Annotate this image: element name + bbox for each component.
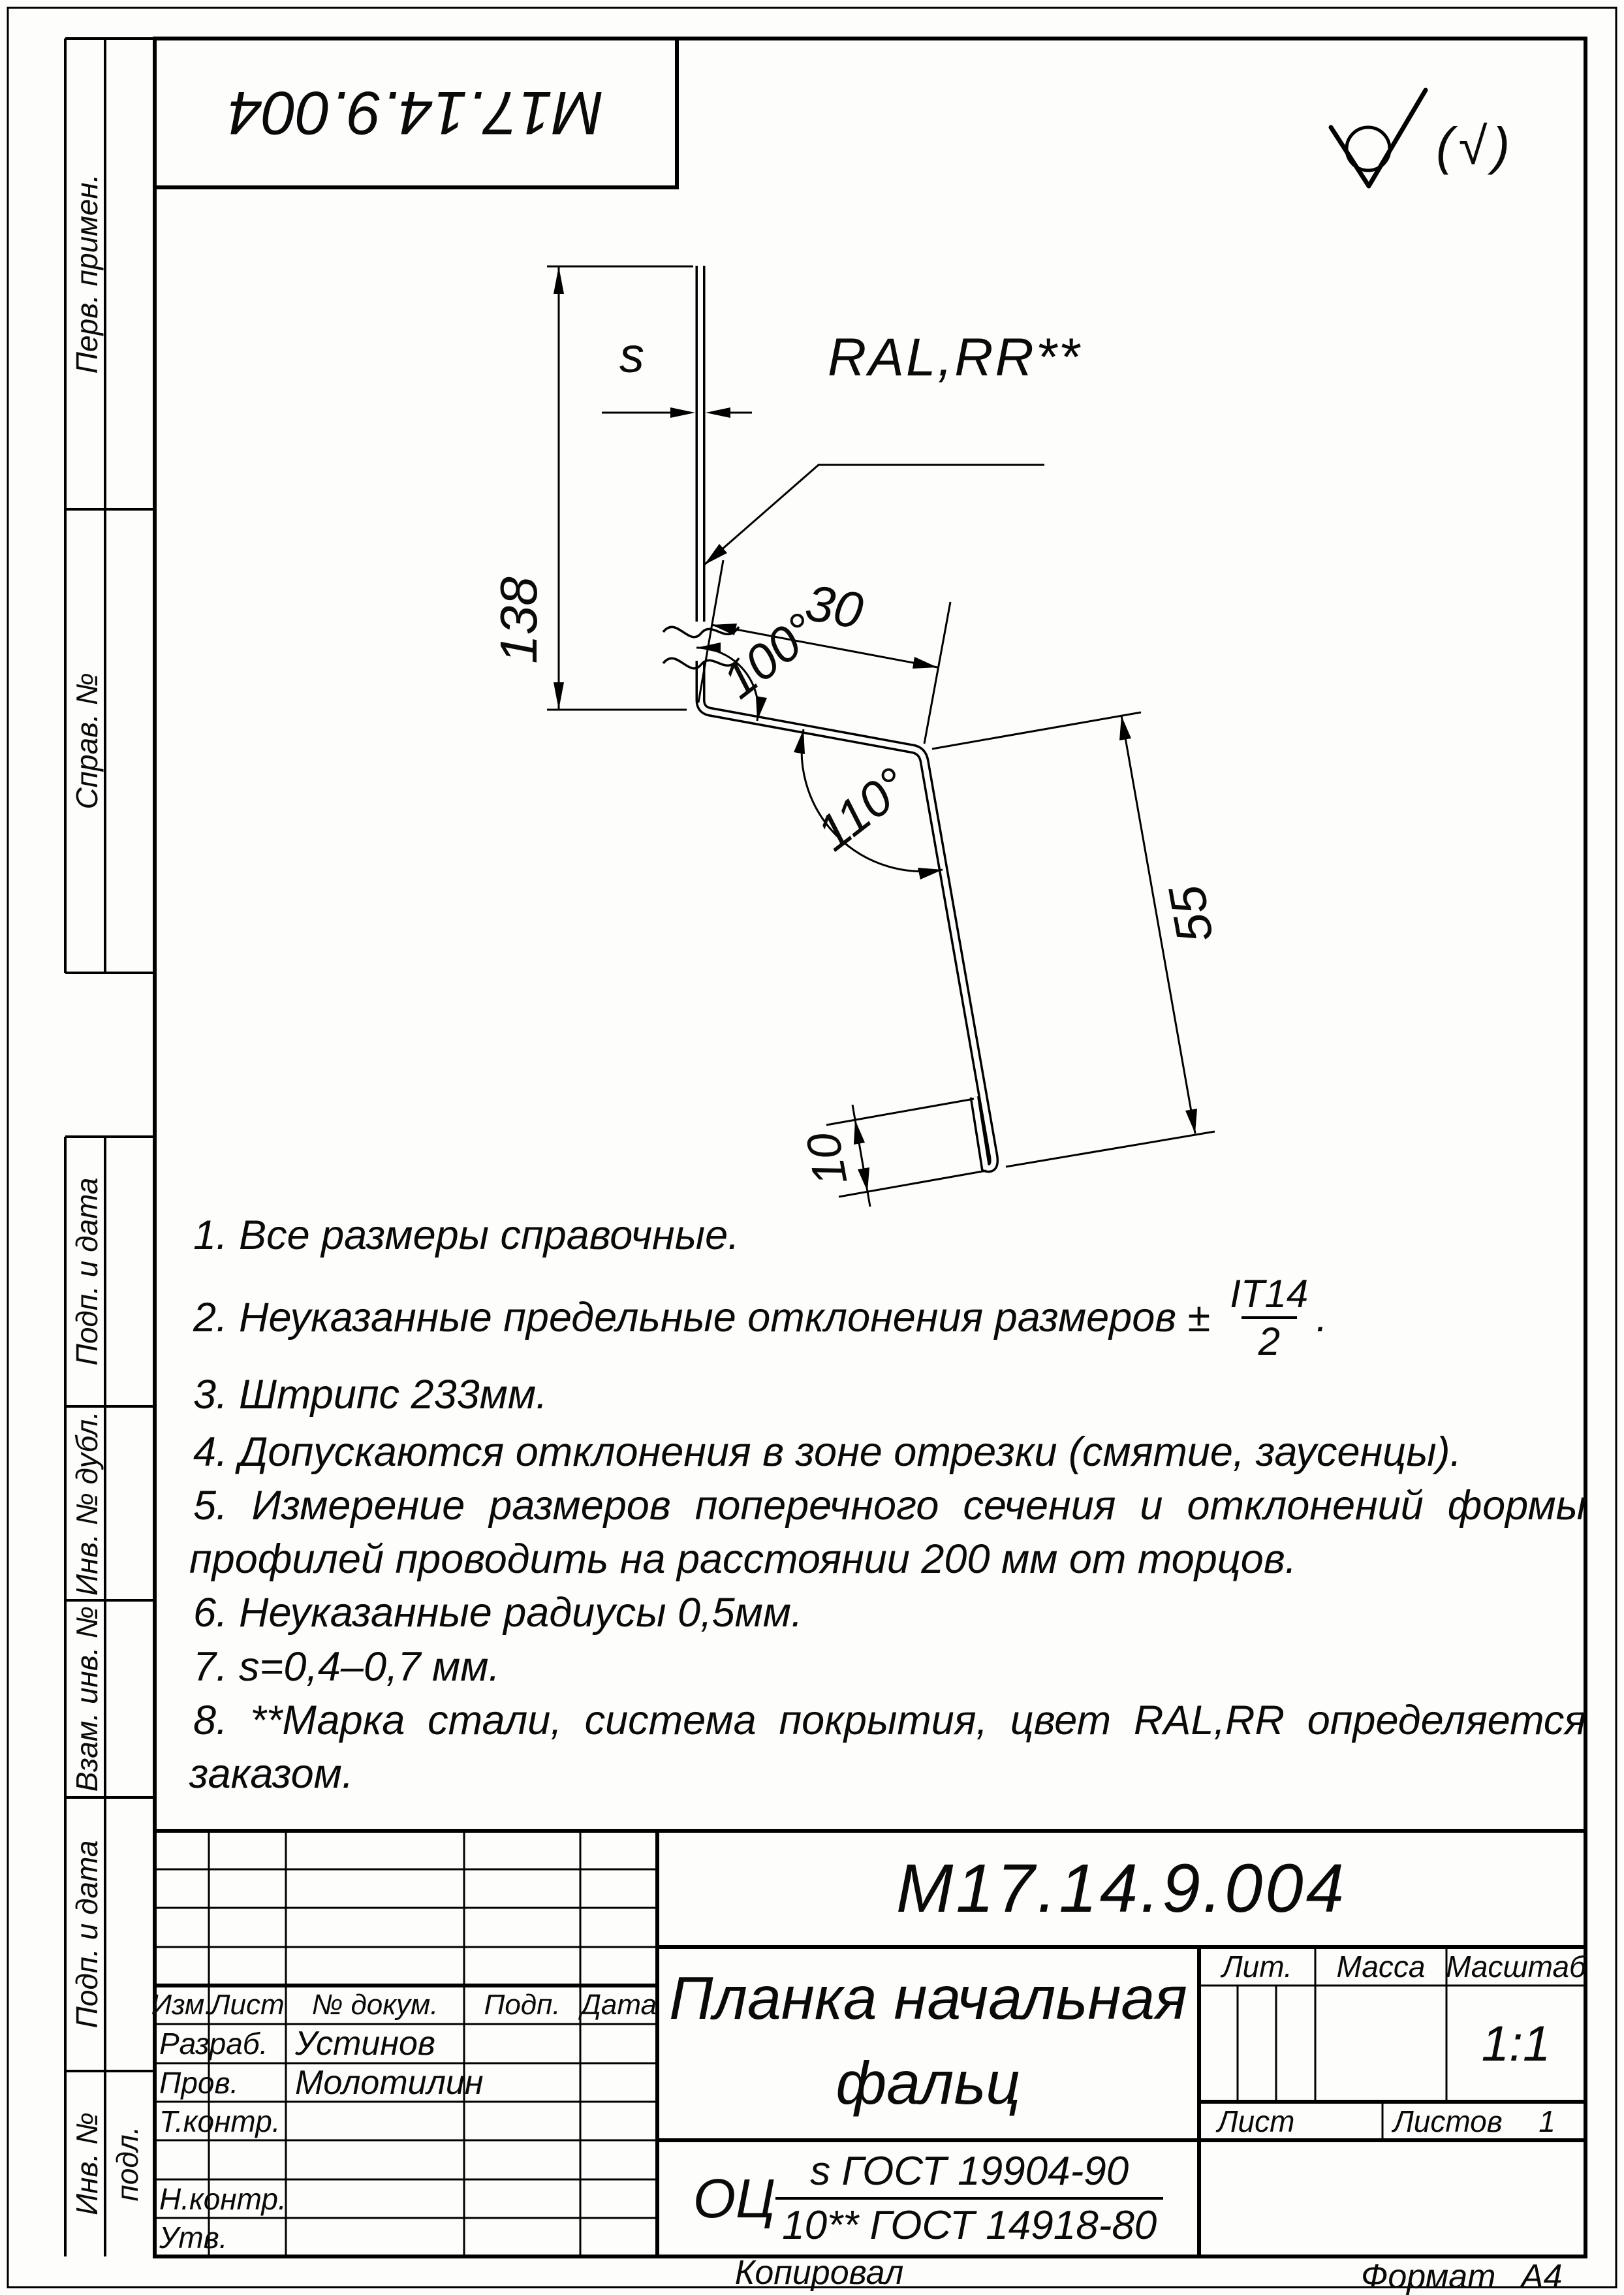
sidebar-label-podp-data-2: Подп. и дата bbox=[67, 1797, 107, 2071]
scale-value: 1:1 bbox=[1446, 1986, 1585, 2102]
note-4: 4. Допускаются отклонения в зоне отрезки… bbox=[193, 1429, 1461, 1476]
sidebar-label-sprav-no: Справ. № bbox=[67, 509, 107, 973]
profile-sheet bbox=[663, 266, 994, 1168]
roughness-symbol bbox=[1331, 90, 1426, 186]
part-name-line2: фальц bbox=[657, 2040, 1199, 2125]
dim-138-label: 138 bbox=[492, 577, 546, 663]
note-2-frac-num: IT14 bbox=[1222, 1271, 1316, 1316]
row-razrab-label: Разраб. bbox=[159, 2024, 286, 2063]
sheet-label: Лист bbox=[1199, 2102, 1401, 2140]
note-5-line2: профилей проводить на расстоянии 200 мм … bbox=[189, 1536, 1296, 1583]
sheets-label: Листов bbox=[1382, 2102, 1513, 2140]
note-5-line1: 5. Измерение размеров поперечного сечени… bbox=[193, 1482, 1586, 1529]
note-7: 7. s=0,4–0,7 мм. bbox=[193, 1643, 500, 1690]
header-podp: Подп. bbox=[464, 1986, 580, 2024]
format-value: А4 bbox=[1521, 2259, 1563, 2295]
row-razrab-name: Устинов bbox=[295, 2024, 464, 2063]
drawing-sheet: М17.14.9.004 Перв. примен. Справ. № Подп… bbox=[0, 0, 1624, 2295]
note-3: 3. Штрипс 233мм. bbox=[193, 1371, 548, 1418]
roughness-alt-note: (√) bbox=[1436, 119, 1515, 174]
sidebar-label-vzam-inv: Взам. инв. № bbox=[67, 1600, 107, 1797]
header-izm: Изм. bbox=[155, 1986, 209, 2024]
sheets-value: 1 bbox=[1521, 2102, 1573, 2140]
row-nkontr-label: Н.контр. bbox=[159, 2179, 286, 2218]
dim-s-label: s bbox=[619, 330, 644, 382]
note-8-line1: 8. **Марка стали, система покрытия, цвет… bbox=[193, 1697, 1586, 1744]
material-gost-sheet: s ГОСТ 19904-90 bbox=[804, 2148, 1135, 2197]
part-name-line1: Планка начальная bbox=[657, 1955, 1199, 2040]
dim-10-label: 10 bbox=[799, 1129, 856, 1189]
mass-header: Масса bbox=[1315, 1947, 1446, 1986]
header-data: Дата bbox=[580, 1986, 657, 2024]
header-doc: № докум. bbox=[286, 1986, 464, 2024]
dimension-lines bbox=[547, 266, 1215, 1207]
note-2-text: 2. Неуказанные предельные отклонения раз… bbox=[193, 1294, 1210, 1341]
title-designation: М17.14.9.004 bbox=[657, 1831, 1585, 1947]
row-tkontr-label: Т.контр. bbox=[159, 2102, 286, 2140]
note-2-fraction: IT14 2 bbox=[1222, 1271, 1316, 1364]
note-1: 1. Все размеры справочные. bbox=[193, 1212, 740, 1259]
lit-header: Лит. bbox=[1199, 1947, 1315, 1986]
format-label: Формат bbox=[1361, 2259, 1495, 2295]
dimension-arrows bbox=[554, 266, 1197, 1192]
copied-label: Копировал bbox=[676, 2258, 963, 2288]
note-2: 2. Неуказанные предельные отклонения раз… bbox=[193, 1263, 1328, 1371]
note-2-period: . bbox=[1316, 1294, 1328, 1341]
material-gost-zinc: 10** ГОСТ 14918-80 bbox=[775, 2197, 1163, 2249]
note-8-line2: заказом. bbox=[189, 1750, 353, 1797]
sidebar-label-perv-primen: Перв. примен. bbox=[67, 39, 107, 509]
row-prov-name: Молотилин bbox=[295, 2063, 464, 2102]
note-6: 6. Неуказанные радиусы 0,5мм. bbox=[193, 1589, 803, 1636]
row-prov-label: Пров. bbox=[159, 2063, 286, 2102]
row-utv-label: Утв. bbox=[159, 2218, 286, 2256]
sidebar-label-inv-podl: Инв. № подл. bbox=[67, 2071, 107, 2256]
scale-header: Масштаб bbox=[1446, 1947, 1585, 1986]
sidebar-label-inv-dubl: Инв. № дубл. bbox=[67, 1406, 107, 1600]
header-list: Лист bbox=[209, 1986, 286, 2024]
material-cell: ОЦ s ГОСТ 19904-90 10** ГОСТ 14918-80 bbox=[661, 2145, 1196, 2252]
coating-label: RAL,RR** bbox=[828, 330, 1082, 386]
dim-55-label: 55 bbox=[1160, 881, 1223, 947]
sidebar-label-podp-data-1: Подп. и дата bbox=[67, 1137, 107, 1406]
note-2-frac-den: 2 bbox=[1241, 1316, 1297, 1364]
material-prefix: ОЦ bbox=[693, 2167, 775, 2230]
material-fraction: s ГОСТ 19904-90 10** ГОСТ 14918-80 bbox=[775, 2148, 1163, 2249]
stamp-doc-number: М17.14.9.004 bbox=[155, 39, 677, 187]
